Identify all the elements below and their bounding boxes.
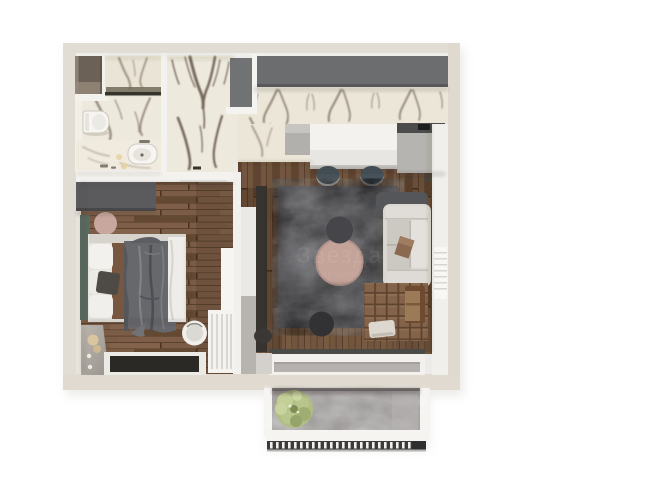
svg-text:Звезда: Звезда [297,242,383,268]
svg-text:нижний: нижний [321,269,362,280]
